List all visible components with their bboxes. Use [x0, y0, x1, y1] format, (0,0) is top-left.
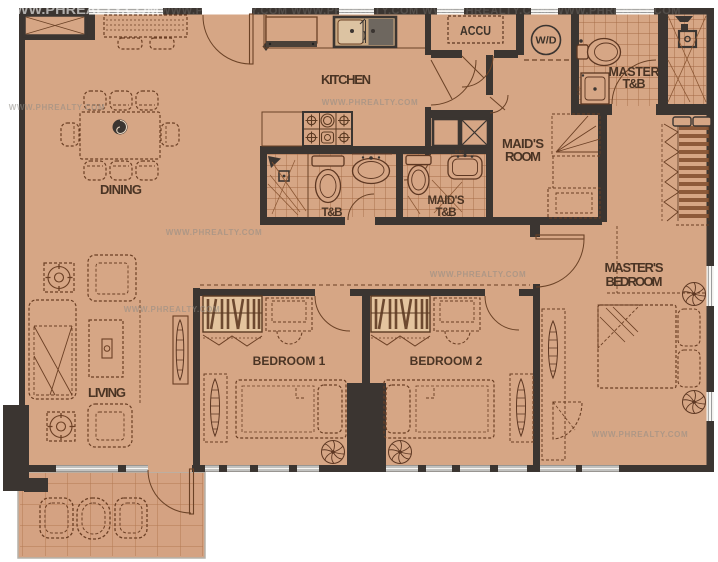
svg-text:WWW.PHREALTY.COM: WWW.PHREALTY.COM: [9, 103, 106, 112]
svg-text:MAID'S: MAID'S: [428, 195, 465, 207]
svg-text:WWW.PHREALTY.COM: WWW.PHREALTY.COM: [1, 2, 159, 17]
svg-text:DINING: DINING: [100, 182, 142, 197]
svg-text:BEDROOM: BEDROOM: [606, 274, 663, 289]
svg-text:ROOM: ROOM: [505, 149, 541, 164]
svg-text:W/D: W/D: [536, 35, 557, 47]
svg-text:T&B: T&B: [436, 207, 457, 219]
svg-text:T&B: T&B: [322, 207, 343, 219]
svg-text:0.60: 0.60: [576, 86, 581, 95]
svg-text:WWW.PHREALTY.COM: WWW.PHREALTY.COM: [430, 270, 527, 279]
svg-text:ACCU: ACCU: [460, 24, 491, 38]
svg-text:WWW.PHREALTY.COM: WWW.PHREALTY.COM: [322, 98, 419, 107]
svg-text:BEDROOM 1: BEDROOM 1: [253, 354, 326, 368]
svg-text:WWW.PHREALTY.COM WWW.PHREALT: WWW.PHREALTY.COM WWW.PHREALTY.COM WWW.PH…: [160, 5, 681, 17]
svg-text:WWW.PHREALTY.COM: WWW.PHREALTY.COM: [592, 430, 689, 439]
svg-text:0.60: 0.60: [455, 149, 464, 154]
svg-text:MASTER'S: MASTER'S: [605, 260, 664, 275]
svg-text:KITCHEN: KITCHEN: [321, 72, 371, 87]
svg-text:WWW.PHREALTY.COM: WWW.PHREALTY.COM: [166, 228, 263, 237]
svg-text:WWW.PHREALTY.COM: WWW.PHREALTY.COM: [124, 305, 221, 314]
svg-text:T&B: T&B: [623, 77, 646, 91]
svg-text:BEDROOM 2: BEDROOM 2: [410, 354, 483, 368]
svg-text:LIVING: LIVING: [88, 385, 126, 400]
